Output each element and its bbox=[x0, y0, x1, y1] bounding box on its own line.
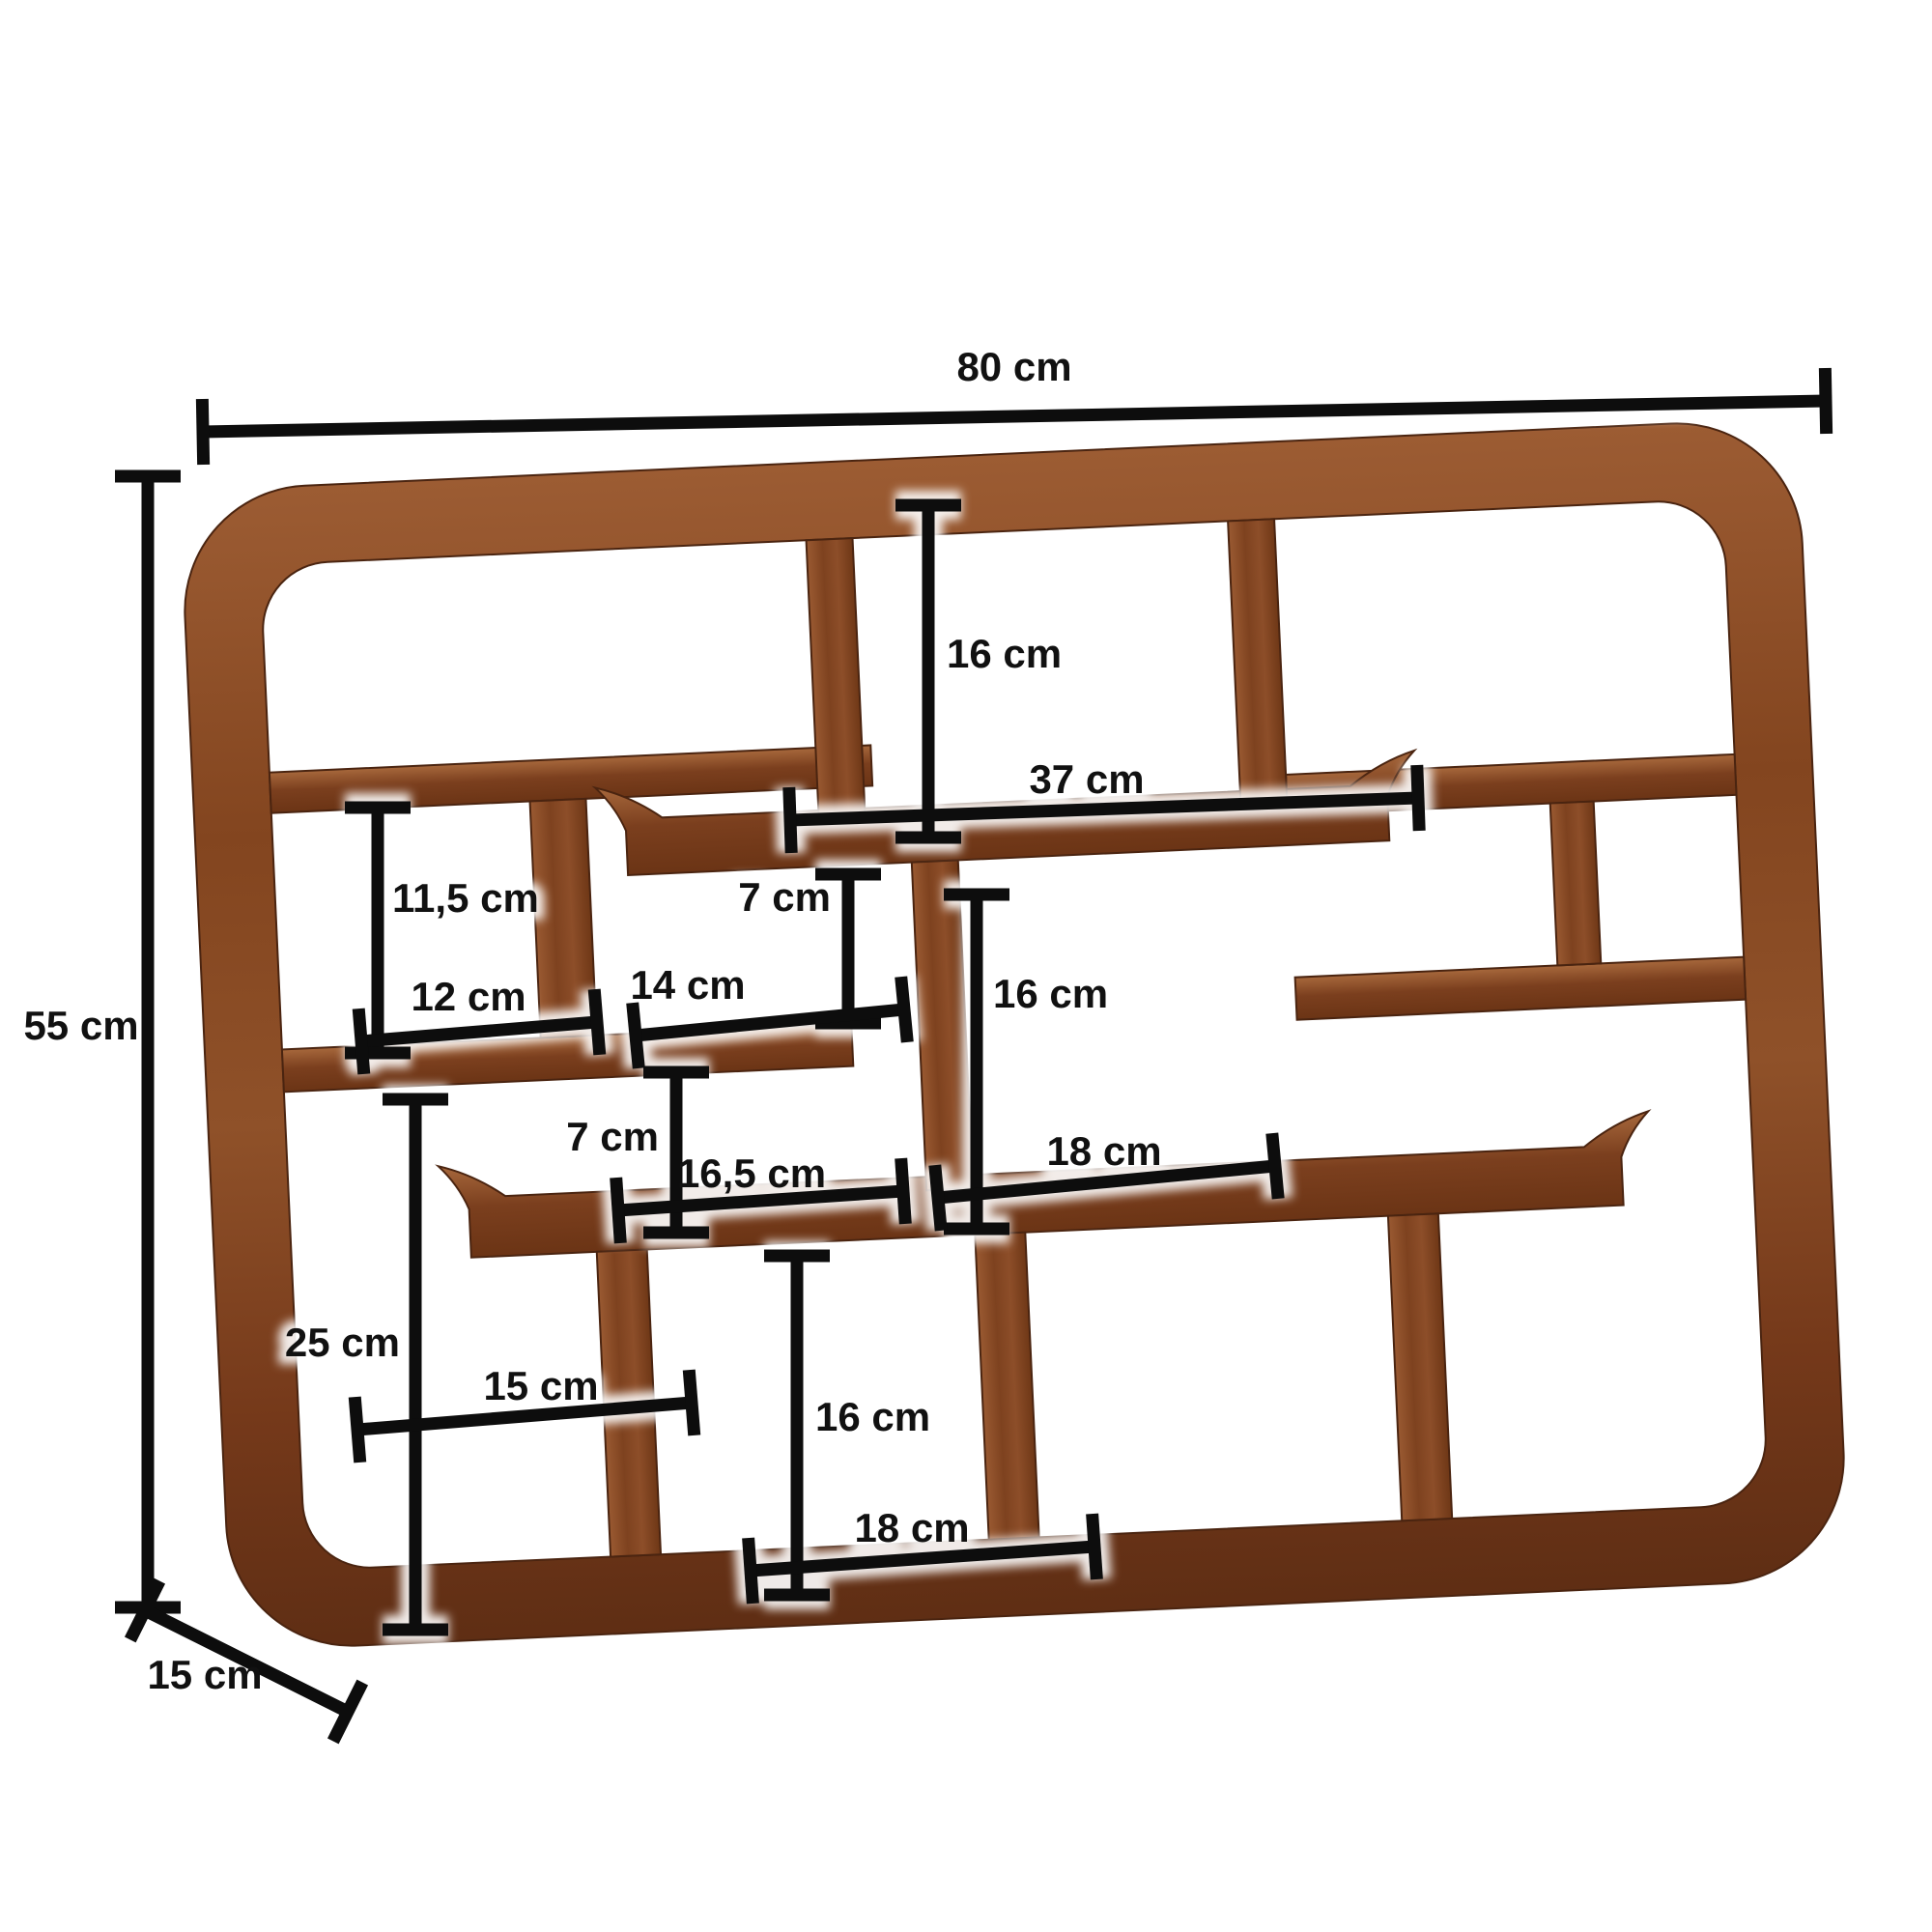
diagram-canvas: 80 cm55 cm15 cm16 cm37 cm11,5 cm7 cm16 c… bbox=[0, 0, 1932, 1932]
dimension-label-inner-width-18-bottom: 18 cm bbox=[854, 1505, 969, 1550]
shelf-divider-top-2 bbox=[1228, 519, 1287, 803]
dimension-label-overall-width: 80 cm bbox=[956, 344, 1071, 389]
dimension-label-inner-width-14: 14 cm bbox=[630, 962, 745, 1008]
dimension-label-overall-depth: 15 cm bbox=[147, 1652, 262, 1697]
dimension-label-inner-width-15: 15 cm bbox=[483, 1363, 598, 1408]
dimension-label-overall-height: 55 cm bbox=[23, 1003, 138, 1048]
product-dimension-diagram: 80 cm55 cm15 cm16 cm37 cm11,5 cm7 cm16 c… bbox=[0, 0, 1932, 1932]
dimension-label-inner-height-7-upper: 7 cm bbox=[738, 874, 831, 920]
dimension-label-inner-width-18-middle: 18 cm bbox=[1046, 1128, 1161, 1174]
shelf-divider-right-small bbox=[1550, 802, 1602, 966]
dimension-label-inner-width-37: 37 cm bbox=[1029, 756, 1144, 802]
shelf-divider-bottom-center bbox=[975, 1233, 1038, 1540]
dimension-label-inner-height-11-5: 11,5 cm bbox=[392, 875, 539, 921]
dimension-label-inner-height-25: 25 cm bbox=[285, 1320, 400, 1365]
shelf-divider-bottom-right bbox=[1388, 1213, 1452, 1520]
dimension-label-inner-height-7-lower: 7 cm bbox=[566, 1114, 659, 1159]
dimension-label-inner-height-top: 16 cm bbox=[947, 631, 1062, 676]
shelf-board-right bbox=[1295, 957, 1747, 1020]
dimension-label-inner-height-16-bottom: 16 cm bbox=[815, 1394, 930, 1439]
dimension-label-inner-height-16-middle: 16 cm bbox=[993, 971, 1108, 1016]
dimension-label-inner-width-12: 12 cm bbox=[411, 974, 526, 1019]
dimension-label-inner-width-16-5: 16,5 cm bbox=[677, 1151, 826, 1196]
